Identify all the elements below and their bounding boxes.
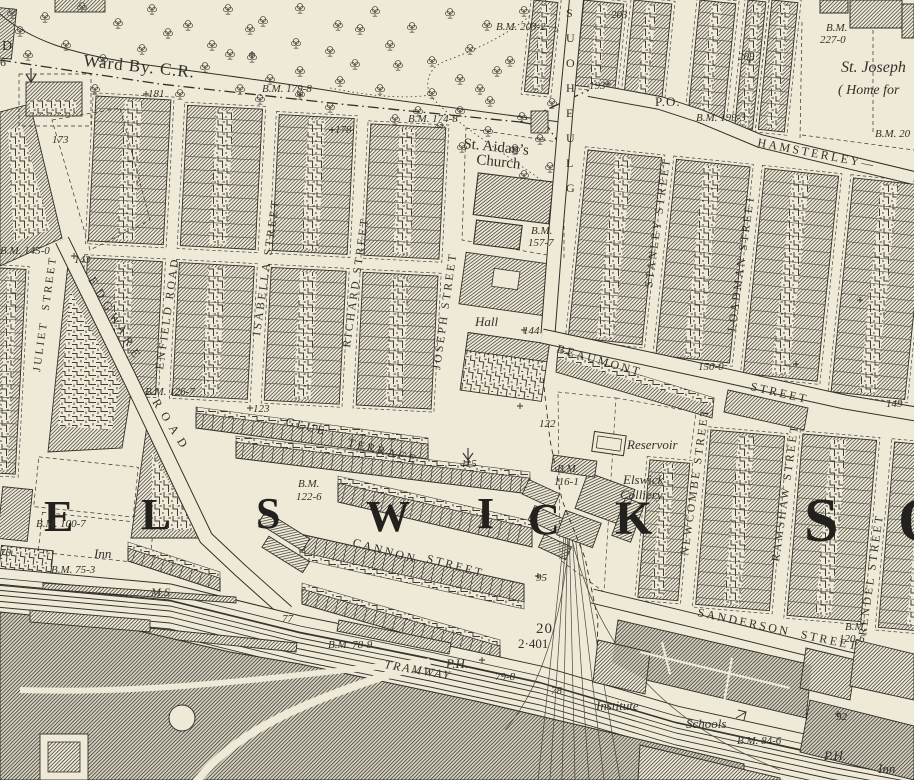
svg-text:77: 77 xyxy=(282,613,294,625)
svg-text:S: S xyxy=(804,487,838,555)
svg-text:P.H.: P.H. xyxy=(823,748,846,763)
svg-text:D: D xyxy=(2,39,12,54)
svg-text:( Home for: ( Home for xyxy=(838,83,900,98)
svg-text:E: E xyxy=(566,106,573,120)
svg-text:G: G xyxy=(566,181,575,195)
svg-text:U: U xyxy=(566,131,575,145)
svg-text:I: I xyxy=(477,489,494,538)
svg-text:149: 149 xyxy=(886,398,903,410)
svg-text:70: 70 xyxy=(0,547,12,559)
svg-text:95: 95 xyxy=(536,572,548,584)
svg-text:B.M. 78-9: B.M. 78-9 xyxy=(328,639,373,651)
svg-text:Inn: Inn xyxy=(877,761,895,776)
svg-text:H: H xyxy=(566,81,575,95)
svg-text:L: L xyxy=(141,490,170,539)
svg-text:Colliery: Colliery xyxy=(620,487,663,502)
svg-text:79-8: 79-8 xyxy=(495,671,516,683)
svg-text:B.M. 126-7: B.M. 126-7 xyxy=(145,386,195,398)
svg-text:B.M. 174-8: B.M. 174-8 xyxy=(408,113,458,125)
svg-text:122: 122 xyxy=(539,418,556,430)
svg-text:C: C xyxy=(528,495,560,544)
svg-text:L: L xyxy=(566,156,573,170)
svg-text:193: 193 xyxy=(589,80,606,92)
svg-text:92: 92 xyxy=(836,711,848,723)
svg-text:B.M. 145-0: B.M. 145-0 xyxy=(0,245,50,257)
svg-text:144: 144 xyxy=(523,325,540,337)
svg-text:6: 6 xyxy=(0,55,6,69)
svg-text:B.M.: B.M. xyxy=(826,22,847,34)
svg-text:116-1: 116-1 xyxy=(554,476,579,488)
svg-text:227-0: 227-0 xyxy=(820,34,846,46)
svg-text:B.M.: B.M. xyxy=(557,463,578,475)
svg-text:B.M.: B.M. xyxy=(298,478,319,490)
svg-text:B.M.: B.M. xyxy=(531,225,552,237)
svg-text:Elswick: Elswick xyxy=(622,472,664,487)
svg-text:173: 173 xyxy=(52,134,69,146)
svg-text:U: U xyxy=(566,31,575,45)
svg-text:E: E xyxy=(44,492,73,541)
svg-text:O: O xyxy=(898,487,914,555)
svg-text:20: 20 xyxy=(536,621,553,637)
svg-text:W: W xyxy=(366,492,410,541)
svg-text:203: 203 xyxy=(611,9,628,21)
svg-text:B.M.: B.M. xyxy=(845,621,866,633)
svg-text:78: 78 xyxy=(551,685,563,697)
svg-text:Reservoir: Reservoir xyxy=(626,437,678,452)
svg-text:157-7: 157-7 xyxy=(528,237,554,249)
svg-text:122-6: 122-6 xyxy=(296,491,322,503)
svg-text:115: 115 xyxy=(461,458,477,470)
svg-text:181: 181 xyxy=(148,88,165,100)
svg-text:B.M. 84-6: B.M. 84-6 xyxy=(737,735,782,747)
svg-text:S: S xyxy=(256,489,280,538)
svg-text:209: 209 xyxy=(738,51,755,63)
svg-text:Institute: Institute xyxy=(595,698,639,713)
svg-text:B.M. 199-3: B.M. 199-3 xyxy=(696,112,746,124)
svg-text:B.M. 75-3: B.M. 75-3 xyxy=(51,564,96,576)
svg-text:Hall: Hall xyxy=(474,314,499,329)
svg-text:B.M. 203-2: B.M. 203-2 xyxy=(496,21,546,33)
svg-text:O: O xyxy=(566,56,575,70)
svg-text:2·401: 2·401 xyxy=(518,636,548,651)
svg-text:St. Joseph: St. Joseph xyxy=(841,59,906,76)
svg-text:178: 178 xyxy=(335,124,352,136)
svg-text:150-0: 150-0 xyxy=(698,361,724,373)
svg-text:123: 123 xyxy=(253,403,270,415)
svg-text:B.M. 100-7: B.M. 100-7 xyxy=(36,518,86,530)
svg-text:S: S xyxy=(566,6,573,20)
svg-text:P.O.: P.O. xyxy=(655,94,681,109)
svg-text:143: 143 xyxy=(74,254,91,266)
svg-text:120-6: 120-6 xyxy=(839,633,865,645)
svg-text:Schools: Schools xyxy=(686,716,726,731)
svg-text:M.S: M.S xyxy=(150,585,170,599)
svg-text:Inn: Inn xyxy=(93,546,111,561)
svg-text:B.M. 179-8: B.M. 179-8 xyxy=(262,83,312,95)
svg-text:B.M. 20: B.M. 20 xyxy=(875,128,911,140)
